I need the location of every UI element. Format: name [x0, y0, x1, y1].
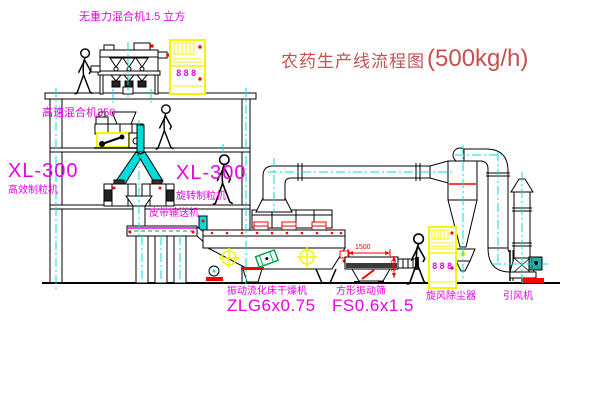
dryer-motor-small — [206, 266, 223, 281]
title-capacity: (500kg/h) — [427, 45, 528, 73]
label-granulator-left-model: XL-300 — [8, 161, 79, 181]
label-fan: 引风机 — [503, 292, 533, 302]
label-granulator-center-model: XL-300 — [176, 163, 247, 183]
diagram-title: 农药生产线流程图 (500kg/h) — [281, 45, 528, 73]
control-cabinet-top — [170, 40, 205, 94]
person-figure — [75, 49, 92, 94]
label-granulator-center-name: 旋转制粒机 — [176, 192, 226, 202]
exhaust-duct — [256, 163, 430, 212]
dimension-sieve-length: 1500 — [355, 244, 371, 251]
label-belt-conveyor: 皮带输送机 — [149, 209, 199, 219]
alarm-dot — [192, 231, 195, 234]
person-figure — [156, 105, 173, 149]
label-sieve-model: FS0.6x1.5 — [332, 297, 414, 314]
feed-inlet — [199, 216, 207, 230]
fan-base — [521, 278, 544, 283]
label-dryer-model: ZLG6x0.75 — [227, 297, 316, 314]
label-granulator-left-name: 高效制粒机 — [8, 186, 58, 196]
belt-conveyor — [127, 216, 221, 283]
alarm-dot — [198, 77, 201, 80]
alarm-dot — [202, 220, 205, 223]
gravity-free-mixer — [91, 43, 170, 94]
alarm-dot — [129, 231, 132, 234]
alarm-dot — [150, 44, 154, 48]
cabinet-display-ground: 888 — [432, 263, 454, 272]
control-cabinet-ground — [429, 227, 456, 288]
label-gravity-free-mixer: 无重力混合机1.5 立方 — [79, 12, 185, 23]
alarm-dot — [159, 187, 162, 190]
sieve-base — [352, 269, 390, 281]
cabinet-display-top: 888 — [176, 70, 198, 79]
fluid-bed-dryer — [203, 210, 345, 283]
alarm-dot — [198, 45, 201, 48]
alarm-dot — [450, 231, 453, 234]
label-cyclone: 旋风除尘器 — [426, 292, 476, 302]
pedestal-pad — [241, 267, 264, 270]
dryer-legs — [316, 269, 336, 283]
vibrating-sieve — [340, 249, 419, 284]
flex-sleeves — [254, 222, 326, 230]
induced-draft-fan — [510, 257, 544, 283]
label-high-speed-mixer: 高速混合机350 — [42, 108, 115, 119]
dryer-deck — [203, 230, 345, 248]
dimension-sieve-height: 541 — [389, 260, 396, 272]
alarm-dot — [113, 187, 116, 190]
title-text: 农药生产线流程图 — [281, 47, 425, 72]
down-pipe — [137, 125, 144, 152]
pesticide-line-flow-diagram: 农药生产线流程图 (500kg/h) 无重力混合机1.5 立方 高速混合机350… — [0, 0, 600, 403]
